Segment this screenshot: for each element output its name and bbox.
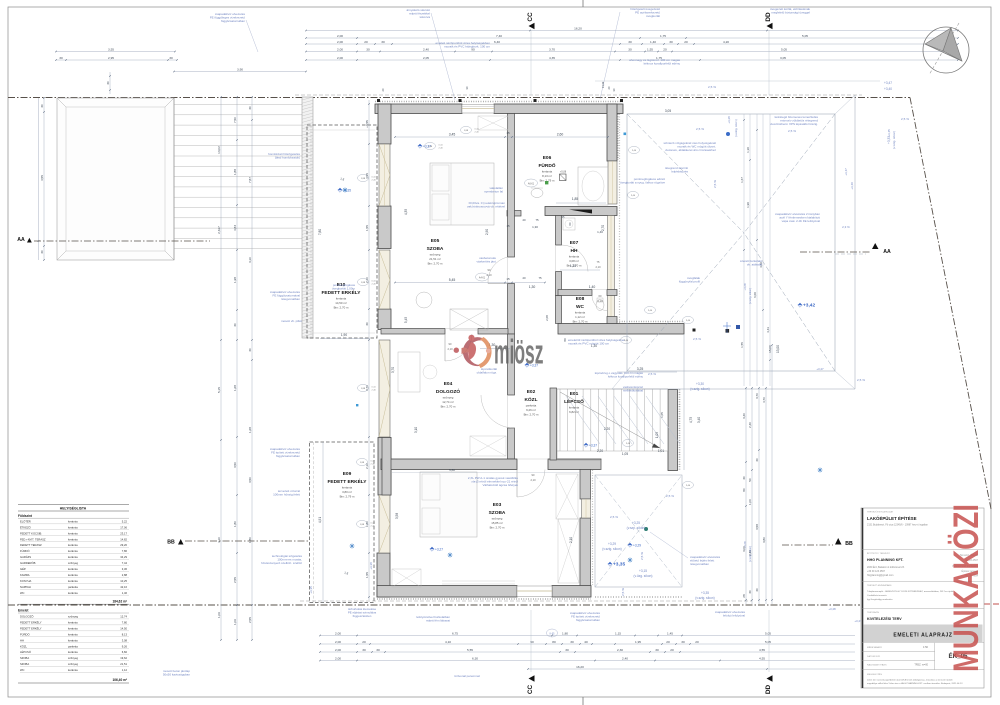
- svg-text:2,10: 2,10: [486, 273, 492, 277]
- svg-text:1,05: 1,05: [660, 412, 664, 418]
- svg-text:2,3 %: 2,3 %: [842, 225, 850, 229]
- svg-text:ÉPÍTTETŐ / TERVEZŐ: ÉPÍTTETŐ / TERVEZŐ: [867, 552, 890, 555]
- svg-text:Váthatszülő ágcsа Gfelyek: Váthatszülő ágcsа Gfelyek: [482, 483, 518, 487]
- svg-text:1,05: 1,05: [655, 432, 659, 438]
- svg-text:+3,55: +3,55: [365, 120, 369, 128]
- svg-text:1,30: 1,30: [746, 147, 750, 153]
- svg-text:75: 75: [538, 276, 542, 280]
- svg-text:(v.szig. síkon): (v.szig. síkon): [892, 131, 896, 149]
- svg-text:kerámia: kerámia: [68, 567, 78, 571]
- svg-text:30: 30: [365, 322, 369, 326]
- svg-text:MÉRETARÁNY: MÉRETARÁNY: [867, 646, 883, 649]
- svg-text:+3,25: +3,25: [632, 521, 640, 525]
- svg-text:2,95: 2,95: [108, 56, 114, 60]
- svg-text:RAJZSZÁM / FÁZIS: RAJZSZÁM / FÁZIS: [867, 664, 887, 667]
- svg-text:2,10: 2,10: [530, 478, 536, 482]
- svg-text:E06: E06: [543, 155, 552, 161]
- svg-text:rétegvonalban: rétegvonalban: [281, 297, 300, 301]
- svg-text:szőnyeg: szőnyeg: [68, 561, 79, 565]
- svg-text:E07: E07: [570, 240, 579, 246]
- svg-text:30: 30: [362, 648, 366, 652]
- svg-text:TERVEZŐ MUNKATÁRS: TERVEZŐ MUNKATÁRS: [867, 584, 892, 587]
- svg-text:2,40: 2,40: [622, 656, 628, 660]
- svg-text:7,80: 7,80: [122, 620, 128, 624]
- svg-text:100mm hőszig.felett: 100mm hőszig.felett: [273, 493, 300, 497]
- svg-text:2,00: 2,00: [337, 47, 343, 51]
- svg-text:1,80: 1,80: [365, 521, 369, 527]
- svg-text:kerámia: kerámia: [569, 255, 580, 259]
- svg-text:34,29: 34,29: [120, 555, 127, 559]
- svg-text:kerámia: kerámia: [68, 591, 78, 595]
- svg-text:14,50 m²: 14,50 m²: [335, 301, 346, 305]
- svg-text:3,36: 3,36: [122, 567, 128, 571]
- svg-text:3,08 m²: 3,08 m²: [569, 259, 579, 263]
- svg-text:WC: WC: [20, 668, 25, 672]
- svg-text:A6-01: A6-01: [528, 182, 535, 185]
- svg-text:2,30: 2,30: [748, 550, 752, 556]
- svg-text:28: 28: [742, 594, 746, 598]
- svg-text:4,43: 4,43: [766, 327, 770, 333]
- svg-text:2,08: 2,08: [545, 315, 549, 321]
- svg-text:+3,15: +3,15: [639, 569, 647, 573]
- svg-text:DD: DD: [765, 685, 772, 695]
- svg-text:+3,37: +3,37: [589, 444, 597, 448]
- svg-text:2,55: 2,55: [233, 577, 237, 583]
- svg-text:14,39: 14,39: [601, 81, 605, 88]
- svg-text:1,55: 1,55: [647, 47, 653, 51]
- svg-text:1,25: 1,25: [570, 264, 576, 268]
- svg-text:Bm: 2,70 m: Bm: 2,70 m: [334, 306, 349, 310]
- svg-text:1,15: 1,15: [615, 631, 621, 635]
- svg-text:SZOBA: SZOBA: [20, 662, 29, 666]
- svg-text:kerámia: kerámia: [68, 519, 78, 523]
- svg-text:4,91: 4,91: [318, 517, 322, 523]
- svg-text:42,16: 42,16: [120, 585, 127, 589]
- svg-text:kerámia: kerámia: [336, 297, 347, 301]
- svg-text:SZOBA: SZOBA: [20, 656, 29, 660]
- svg-text:kerámia: kerámia: [68, 555, 78, 559]
- svg-text:WC: WC: [20, 591, 25, 595]
- svg-text:5,05: 5,05: [802, 34, 808, 38]
- svg-text:20: 20: [362, 640, 366, 644]
- svg-text:19,62: 19,62: [120, 656, 127, 660]
- svg-text:5,45: 5,45: [404, 317, 408, 323]
- svg-text:3,05: 3,05: [665, 109, 671, 113]
- svg-text:5,80: 5,80: [449, 468, 455, 472]
- svg-text:2,20: 2,20: [365, 277, 369, 283]
- svg-text:FÜRDŐ: FÜRDŐ: [538, 162, 555, 169]
- svg-text:kéknoz korallporfelül edény: kéknoz korallporfelül edény: [608, 375, 644, 379]
- svg-text:20: 20: [670, 648, 674, 652]
- svg-text:FEDETT TERASZ: FEDETT TERASZ: [20, 543, 42, 547]
- svg-text:2,10: 2,10: [569, 537, 573, 543]
- svg-text:+3,47: +3,47: [884, 81, 892, 85]
- svg-text:2131 Budakeszi, Fő utca 12345/: 2131 Budakeszi, Fő utca 12345/6 - 10987 …: [867, 524, 928, 527]
- svg-text:(v.szp. síkon): (v.szp. síkon): [627, 526, 646, 530]
- svg-text:kéknoz korallporfelül edény: kéknoz korallporfelül edény: [644, 62, 681, 66]
- svg-text:2,00: 2,00: [335, 648, 341, 652]
- svg-text:2,05: 2,05: [423, 56, 429, 60]
- svg-text:üvegkorlát a nyug. falhoz rögz: üvegkorlát a nyug. falhoz rögzítve: [620, 181, 665, 185]
- svg-text:6,75: 6,75: [452, 631, 458, 635]
- svg-text:+3,47: +3,47: [816, 367, 824, 371]
- svg-text:5,22: 5,22: [122, 519, 128, 523]
- svg-text:2,5 %: 2,5 %: [640, 552, 644, 560]
- svg-text:parketta: parketta: [68, 644, 78, 648]
- svg-text:1,98: 1,98: [233, 277, 237, 283]
- svg-text:30: 30: [748, 590, 752, 594]
- svg-text:30: 30: [106, 81, 110, 85]
- svg-text:miösz: miösz: [494, 333, 544, 371]
- svg-text:szőnyeg: szőnyeg: [430, 253, 441, 257]
- svg-text:függőcsatornában: függőcsatornában: [221, 19, 245, 23]
- svg-text:1,06: 1,06: [233, 619, 237, 625]
- svg-text:30: 30: [40, 250, 44, 254]
- svg-text:10,25: 10,25: [120, 579, 127, 583]
- svg-text:75: 75: [535, 218, 539, 222]
- svg-text:3,70: 3,70: [549, 47, 555, 51]
- svg-text:Autonwo, ablakkeret árú címzés: Autonwo, ablakkeret árú címzésekhez: [665, 148, 716, 152]
- svg-text:30: 30: [59, 56, 63, 60]
- svg-text:1,68: 1,68: [248, 427, 252, 433]
- svg-text:50: 50: [748, 478, 752, 482]
- svg-text:6,82 m²: 6,82 m²: [569, 410, 579, 414]
- svg-text:80: 80: [742, 488, 746, 492]
- svg-text:5,45: 5,45: [449, 278, 456, 282]
- svg-text:20: 20: [663, 47, 667, 51]
- svg-text:szőnyeg: szőnyeg: [443, 396, 454, 400]
- svg-text:mozaik és PVC hidegburk. 100 c: mozaik és PVC hidegburk. 100 cm: [444, 45, 491, 49]
- svg-text:törtvonal peremmel: törtvonal peremmel: [454, 674, 480, 678]
- svg-text:WC: WC: [576, 304, 585, 310]
- svg-text:90: 90: [471, 47, 475, 51]
- svg-text:Bm: 2,70 m: Bm: 2,70 m: [428, 262, 443, 266]
- svg-text:2,00: 2,00: [335, 656, 341, 660]
- svg-text:5,55: 5,55: [467, 648, 473, 652]
- svg-text:3,80 m²: 3,80 m²: [342, 490, 352, 494]
- svg-text:kerámia: kerámia: [575, 311, 586, 315]
- svg-text:1,80: 1,80: [248, 537, 252, 543]
- svg-text:3,45: 3,45: [449, 133, 456, 137]
- svg-text:E09: E09: [343, 471, 352, 477]
- svg-text:+3,27: +3,27: [435, 548, 443, 552]
- svg-text:30: 30: [628, 47, 632, 51]
- svg-text:15: 15: [506, 131, 510, 135]
- svg-text:17,06: 17,06: [120, 525, 127, 529]
- svg-text:20: 20: [364, 40, 368, 44]
- svg-text:2,5 %: 2,5 %: [621, 588, 625, 596]
- svg-text:4,75: 4,75: [689, 417, 693, 423]
- svg-text:6,30: 6,30: [472, 656, 478, 660]
- svg-text:2,5 %: 2,5 %: [713, 180, 717, 188]
- svg-text:E08: E08: [576, 296, 585, 302]
- svg-text:BB: BB: [167, 540, 175, 546]
- svg-text:(v.szig. síkon): (v.szig. síkon): [690, 387, 709, 391]
- svg-text:30: 30: [570, 640, 574, 644]
- svg-text:+3,38: +3,38: [369, 562, 373, 570]
- svg-text:2,00: 2,00: [335, 631, 341, 635]
- svg-text:184,62 m²: 184,62 m²: [112, 600, 127, 604]
- svg-text:2,5 %: 2,5 %: [648, 372, 656, 376]
- svg-text:1,68: 1,68: [233, 385, 237, 391]
- svg-text:Földszint: Földszint: [18, 514, 33, 518]
- svg-text:AA: AA: [883, 249, 891, 255]
- svg-text:kerámia: kerámia: [68, 531, 78, 535]
- svg-text:3,40: 3,40: [697, 417, 701, 423]
- svg-text:7,50: 7,50: [233, 117, 237, 123]
- svg-text:hhgplanning@gmail.com: hhgplanning@gmail.com: [867, 574, 893, 577]
- svg-text:SZOBA: SZOBA: [489, 510, 506, 516]
- svg-text:2,40: 2,40: [748, 422, 752, 428]
- svg-text:1,80: 1,80: [562, 631, 568, 635]
- svg-text:2,5 %: 2,5 %: [788, 129, 796, 133]
- svg-text:kerámia: kerámia: [68, 579, 78, 583]
- svg-text:kerámia: kerámia: [68, 626, 78, 630]
- svg-text:CC: CC: [527, 685, 534, 695]
- svg-text:SZOBA: SZOBA: [427, 246, 444, 252]
- svg-text:1,85: 1,85: [572, 197, 579, 201]
- svg-text:4,35: 4,35: [404, 209, 408, 215]
- svg-text:7,86: 7,86: [122, 549, 128, 553]
- svg-text:+3,47: +3,47: [844, 168, 848, 176]
- svg-text:E04: E04: [444, 381, 453, 387]
- svg-text:függőcsatornában: függőcsatornában: [576, 618, 600, 622]
- svg-text:kerámia: kerámia: [68, 668, 78, 672]
- svg-text:1,06: 1,06: [217, 612, 221, 618]
- svg-text:30: 30: [565, 648, 569, 652]
- svg-text:kerámia: kerámia: [68, 525, 78, 529]
- svg-text:13,02: 13,02: [217, 146, 221, 154]
- svg-text:vázkerítés járó: vázkerítés járó: [476, 260, 496, 264]
- svg-text:2,60: 2,60: [557, 133, 564, 137]
- svg-text:21,51 m²: 21,51 m²: [429, 257, 440, 261]
- svg-text:üvegkorlát 1,00m: üvegkorlát 1,00m: [332, 287, 356, 291]
- svg-text:15: 15: [506, 277, 510, 281]
- svg-text:A4-01: A4-01: [479, 276, 486, 279]
- svg-text:2,5 %: 2,5 %: [708, 85, 716, 89]
- svg-text:2,10: 2,10: [595, 265, 601, 269]
- svg-text:szőnyeg: szőnyeg: [68, 615, 79, 619]
- svg-text:HH: HH: [571, 248, 578, 254]
- svg-text:9,26 m²: 9,26 m²: [526, 408, 536, 412]
- svg-text:4,35: 4,35: [549, 56, 555, 60]
- svg-text:5,05: 5,05: [765, 640, 771, 644]
- svg-text:7,40: 7,40: [496, 34, 502, 38]
- svg-text:30: 30: [755, 458, 759, 462]
- svg-text:20: 20: [695, 640, 699, 644]
- svg-text:2,40: 2,40: [423, 47, 429, 51]
- svg-text:4,70: 4,70: [762, 397, 766, 403]
- svg-text:2,00: 2,00: [337, 34, 343, 38]
- svg-text:1,90: 1,90: [341, 333, 347, 337]
- svg-text:1,30: 1,30: [529, 285, 536, 289]
- svg-text:1,88: 1,88: [233, 169, 237, 175]
- svg-text:CC: CC: [527, 12, 534, 22]
- svg-text:2,00: 2,00: [337, 56, 343, 60]
- svg-text:+3,35: +3,35: [701, 591, 709, 595]
- svg-text:3,25: 3,25: [637, 367, 644, 371]
- svg-text:30: 30: [40, 104, 44, 108]
- svg-text:rejtett fém lábazat: rejtett fém lábazat: [426, 619, 450, 623]
- svg-text:vak.htnkrosrovvá vb. rétiével: vak.htnkrosrovvá vb. rétiével: [467, 205, 505, 209]
- svg-text:2,617: 2,617: [217, 226, 221, 234]
- svg-text:+3,29: +3,29: [608, 542, 616, 546]
- svg-text:3,50: 3,50: [233, 462, 237, 468]
- svg-text:1,95: 1,95: [635, 640, 641, 644]
- svg-text:KIVITELEZÉSI TERV: KIVITELEZÉSI TERV: [867, 616, 902, 621]
- svg-text:50x50 kavicságyban: 50x50 kavicságyban: [163, 673, 191, 677]
- svg-text:(lásd homlokzatok): (lásd homlokzatok): [275, 156, 300, 160]
- svg-text:40: 40: [584, 640, 588, 644]
- svg-text:30: 30: [248, 348, 252, 352]
- svg-text:+36 30 123 4567: +36 30 123 4567: [867, 570, 886, 573]
- svg-text:HH: HH: [20, 638, 24, 642]
- svg-text:Ausztrotherm XPS lépésálló hős: Ausztrotherm XPS lépésálló hőszig.: [770, 122, 818, 126]
- svg-text:E05: E05: [431, 238, 440, 244]
- svg-text:3,80: 3,80: [762, 537, 766, 543]
- svg-text:21,51: 21,51: [120, 662, 127, 666]
- svg-text:1,12: 1,12: [122, 668, 128, 672]
- svg-text:kerámia: kerámia: [68, 573, 78, 577]
- svg-text:(v.üzg. síkon): (v.üzg. síkon): [634, 574, 653, 578]
- svg-text:Családiház tervezés: Családiház tervezés: [867, 594, 888, 597]
- svg-text:1,30: 1,30: [591, 344, 597, 348]
- svg-text:2,5 %: 2,5 %: [666, 494, 674, 498]
- svg-text:15: 15: [506, 224, 510, 228]
- svg-text:HHG PLANNING KFT.: HHG PLANNING KFT.: [867, 558, 904, 562]
- svg-text:15,00: 15,00: [768, 345, 772, 353]
- svg-text:4,83: 4,83: [233, 225, 237, 231]
- svg-text:30: 30: [248, 106, 252, 110]
- svg-text:parketta: parketta: [68, 585, 78, 589]
- svg-text:7,44: 7,44: [122, 561, 128, 565]
- svg-text:3,70: 3,70: [391, 367, 395, 373]
- svg-text:2,00: 2,00: [335, 640, 341, 644]
- svg-text:5,05: 5,05: [781, 47, 787, 51]
- svg-text:függesztésben: függesztésben: [353, 614, 372, 618]
- svg-text:30: 30: [669, 40, 673, 44]
- svg-text:14,82: 14,82: [120, 537, 127, 541]
- svg-text:vápa csat. 2 db FE lefolyóval: vápa csat. 2 db FE lefolyóval: [782, 219, 821, 223]
- svg-text:+3,45: +3,45: [887, 129, 891, 137]
- svg-text:3,40: 3,40: [742, 413, 746, 419]
- svg-text:1,45: 1,45: [667, 631, 673, 635]
- svg-text:30: 30: [742, 476, 746, 480]
- svg-text:HELYISÉGLISTA: HELYISÉGLISTA: [60, 505, 87, 510]
- svg-text:Bm: 2,79 m: Bm: 2,79 m: [340, 495, 355, 499]
- svg-text:KAMRA: KAMRA: [20, 573, 30, 577]
- svg-text:2,20: 2,20: [597, 449, 603, 453]
- svg-text:szőnyeg: szőnyeg: [68, 656, 79, 660]
- svg-text:4,10: 4,10: [445, 640, 451, 644]
- svg-text:+3,42: +3,42: [803, 303, 815, 309]
- svg-text:80: 80: [552, 640, 556, 644]
- svg-text:LAKÓÉPÜLET ÉPÍTÉSE: LAKÓÉPÜLET ÉPÍTÉSE: [867, 516, 917, 521]
- svg-text:kerámia: kerámia: [68, 650, 78, 654]
- svg-text:GARÁZS: GARÁZS: [20, 555, 31, 559]
- svg-text:KÖZL: KÖZL: [524, 396, 537, 403]
- svg-text:4,55: 4,55: [759, 656, 765, 660]
- svg-text:Tulajdonosnapló - GERGŐVÖLGY Ú: Tulajdonosnapló - GERGŐVÖLGY ÚJ ÉS FŐTER…: [867, 590, 955, 593]
- svg-text:23,17: 23,17: [120, 531, 127, 535]
- svg-text:7,87: 7,87: [248, 177, 252, 183]
- svg-text:TERVFÁZIS: TERVFÁZIS: [867, 611, 880, 614]
- svg-text:14,50: 14,50: [120, 626, 127, 630]
- svg-text:4,55: 4,55: [365, 173, 369, 179]
- svg-text:függőcsatornában: függőcsatornában: [276, 454, 300, 458]
- svg-text:FEDETT KOCSIB.: FEDETT KOCSIB.: [20, 531, 42, 535]
- svg-text:3,05: 3,05: [780, 56, 786, 60]
- svg-text:30: 30: [233, 323, 237, 327]
- svg-text:AA: AA: [17, 237, 25, 243]
- svg-text:(v.szig. síkon): (v.szig. síkon): [748, 288, 752, 304]
- svg-text:3,90: 3,90: [237, 67, 243, 71]
- svg-text:Bm: 2,70 m: Bm: 2,70 m: [490, 526, 505, 530]
- svg-text:1,01: 1,01: [658, 449, 664, 453]
- svg-text:4,10: 4,10: [217, 537, 221, 543]
- svg-text:lejtésképzés: lejtésképzés: [671, 170, 688, 174]
- svg-text:20: 20: [522, 276, 526, 280]
- svg-text:FED.+NYIT. TERASZ: FED.+NYIT. TERASZ: [20, 537, 46, 541]
- svg-text:3,50: 3,50: [248, 477, 252, 483]
- svg-text:4,55: 4,55: [40, 175, 44, 181]
- svg-text:3,58: 3,58: [395, 513, 399, 519]
- svg-text:1,40: 1,40: [650, 40, 656, 44]
- svg-text:MUNKAKÖZI: MUNKAKÖZI: [947, 504, 986, 672]
- svg-text:mellvédkorláttal: mellvédkorláttal: [623, 389, 643, 393]
- svg-text:6,82: 6,82: [122, 650, 128, 654]
- svg-text:5,15: 5,15: [217, 387, 221, 393]
- svg-text:3,55: 3,55: [108, 47, 114, 51]
- svg-text:+3,40: +3,40: [884, 87, 892, 91]
- svg-text:1,40: 1,40: [597, 230, 603, 234]
- svg-text:+3,35: +3,35: [309, 586, 313, 594]
- svg-text:13,00: 13,00: [776, 345, 780, 353]
- svg-text:üvegkorlát: üvegkorlát: [646, 14, 660, 18]
- svg-text:mozaik és PVC mögött 100 cm: mozaik és PVC mögött 100 cm: [568, 342, 610, 346]
- svg-text:+3,29: +3,29: [633, 544, 641, 548]
- svg-text:KÖZL: KÖZL: [20, 644, 28, 648]
- svg-text:kerámia: kerámia: [68, 638, 78, 642]
- svg-text:1,46: 1,46: [122, 591, 128, 595]
- svg-text:1,75: 1,75: [660, 34, 666, 38]
- svg-text:3,58: 3,58: [755, 524, 759, 530]
- svg-text:+3,35: +3,35: [613, 562, 625, 568]
- svg-text:6,40: 6,40: [494, 40, 500, 44]
- svg-text:engedélye nélkül tilos! Jelen: engedélye nélkül tilos! Jelen terv a HHG…: [867, 682, 963, 685]
- svg-text:rétegvonalban: rétegvonalban: [690, 562, 709, 566]
- svg-text:(v.szig. síkon): (v.szig. síkon): [602, 547, 621, 551]
- svg-text:2,00: 2,00: [337, 40, 343, 44]
- svg-text:parketta: parketta: [526, 404, 537, 408]
- svg-text:3,08: 3,08: [122, 638, 128, 642]
- svg-text:4,20: 4,20: [723, 40, 729, 44]
- svg-text:8,13 m²: 8,13 m²: [542, 174, 552, 178]
- svg-text:1,55: 1,55: [740, 342, 744, 348]
- svg-text:E03: E03: [493, 502, 502, 508]
- svg-text:vb. attikafal: vb. attikafal: [747, 263, 763, 267]
- svg-text:mosott vb. pillér: mosott vb. pillér: [281, 319, 302, 323]
- svg-text:1:50: 1:50: [923, 645, 929, 649]
- svg-text:2,88: 2,88: [122, 573, 128, 577]
- svg-text:2,5 %: 2,5 %: [857, 378, 865, 382]
- svg-text:1,30: 1,30: [532, 225, 538, 229]
- svg-text:TRSZ: m=00: TRSZ: m=00: [914, 664, 928, 667]
- svg-text:30: 30: [376, 648, 380, 652]
- svg-text:106,40 m²: 106,40 m²: [112, 678, 127, 682]
- svg-text:30: 30: [628, 40, 632, 44]
- svg-text:tokozva: tokozva: [420, 15, 431, 19]
